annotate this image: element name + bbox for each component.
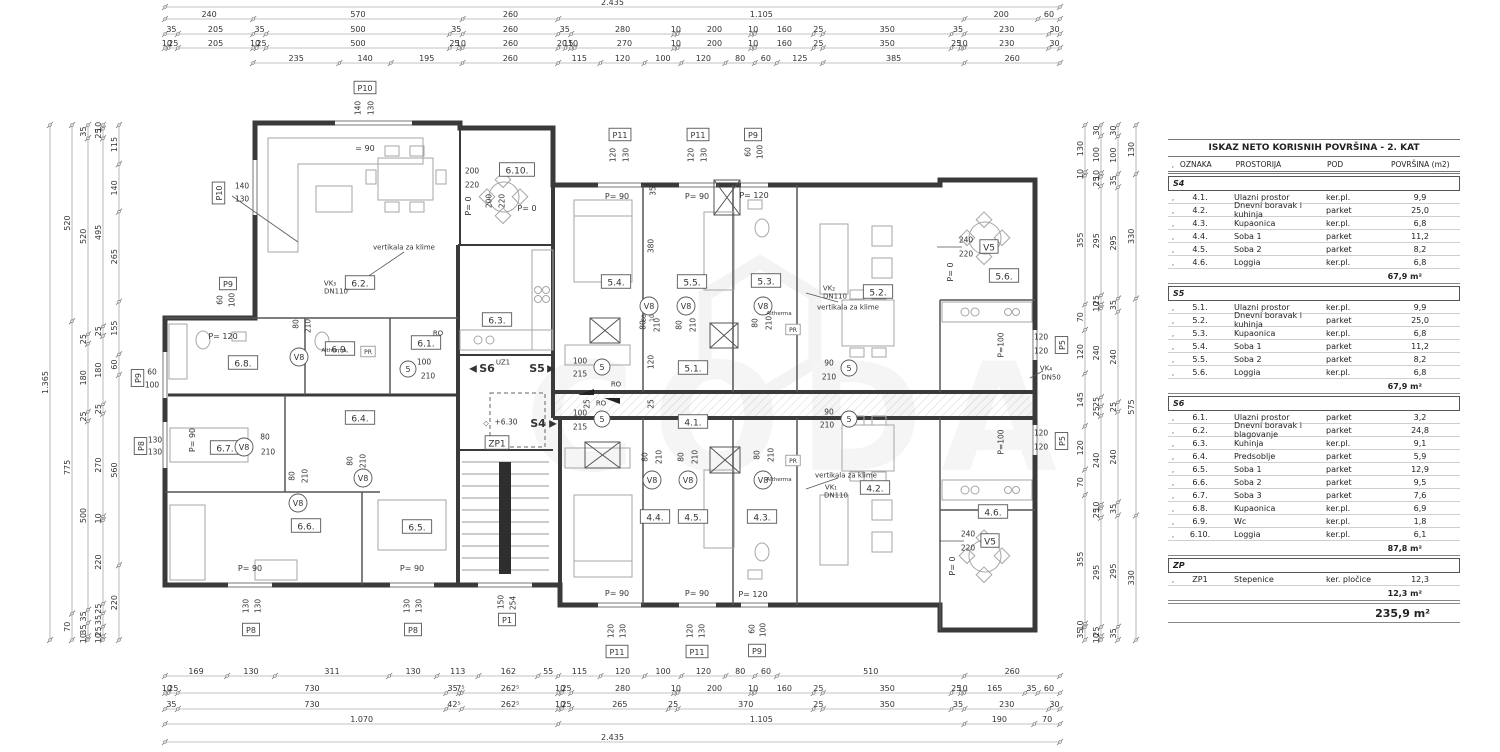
plan-text: 80 — [346, 456, 355, 466]
table-cell: Kuhinja — [1222, 439, 1318, 448]
boxed-label: 4.6. — [978, 505, 1007, 519]
table-cell: ker.pl. — [1318, 368, 1380, 377]
svg-text:ZP1: ZP1 — [488, 439, 505, 449]
svg-text:130: 130 — [619, 624, 628, 639]
dim-label: 30 — [1049, 39, 1059, 48]
plan-text: vertikala za klime — [815, 472, 877, 480]
plan-text: 240 — [961, 530, 976, 539]
dim-label: 385 — [886, 54, 901, 63]
table-row: ,6.6.Soba 2parket9,5 — [1168, 476, 1460, 489]
dim-label: 130 — [1127, 142, 1136, 157]
section-subtotal: 12,3 m² — [1168, 586, 1460, 601]
table-cell: parket — [1318, 355, 1380, 364]
dim-label: 30 — [1092, 125, 1101, 135]
svg-text:240: 240 — [959, 236, 974, 245]
plan-text: 220 — [961, 544, 976, 553]
table-header-row: , OZNAKA PROSTORIJA POD POVRŠINA (m2) — [1168, 157, 1460, 174]
svg-text:6.1.: 6.1. — [417, 339, 434, 349]
dim-label: 125 — [792, 54, 807, 63]
table-cell: 6.7. — [1178, 491, 1222, 500]
svg-text:210: 210 — [655, 450, 664, 465]
dim-label: 35 — [94, 615, 103, 625]
plan-text: RO — [596, 400, 607, 408]
table-cell: 25,0 — [1380, 316, 1460, 325]
svg-text:DN110: DN110 — [824, 492, 848, 500]
svg-text:130: 130 — [254, 599, 263, 614]
table-cell: Soba 3 — [1222, 491, 1318, 500]
table-cell: parket — [1318, 206, 1380, 215]
svg-text:DN110: DN110 — [324, 288, 348, 296]
svg-text:210: 210 — [820, 421, 835, 430]
svg-text:80: 80 — [292, 319, 301, 329]
boxed-label: 6.3. — [482, 313, 511, 327]
svg-text:PR: PR — [364, 349, 372, 356]
dim-label: 25 — [1092, 406, 1101, 416]
plan-text: Altherma — [321, 348, 346, 354]
section-header-zp: ZP — [1168, 558, 1460, 573]
table-cell: , — [1168, 368, 1178, 377]
plan-text: P=100 — [997, 429, 1006, 454]
circled-label: V8 — [354, 469, 372, 487]
table-cell: ker.pl. — [1318, 193, 1380, 202]
table-cell: 6,8 — [1380, 329, 1460, 338]
svg-text:4.5.: 4.5. — [684, 513, 701, 523]
plan-text: 200 — [485, 194, 494, 209]
plan-text: P= 0 — [948, 556, 957, 575]
table-cell: 9,9 — [1380, 193, 1460, 202]
svg-text:200: 200 — [485, 194, 494, 209]
svg-text:130: 130 — [415, 599, 424, 614]
dim-chain: 3010010252952510240252524010252952510 — [1092, 122, 1104, 643]
dim-label: 1.070 — [350, 715, 373, 724]
svg-text:140: 140 — [354, 101, 363, 116]
table-cell: 5.5. — [1178, 355, 1222, 364]
dim-label: 60 — [761, 54, 771, 63]
table-cell: , — [1168, 316, 1178, 325]
dim-label: 260 — [503, 39, 518, 48]
table-cell: Wc — [1222, 517, 1318, 526]
table-row: ,4.2.Dnevni boravak i kuhinjaparket25,0 — [1168, 204, 1460, 217]
svg-text:P1: P1 — [502, 616, 512, 625]
dim-label: 25 — [813, 684, 823, 693]
dim-label: 220 — [94, 554, 103, 569]
dim-label: 60 — [1044, 10, 1054, 19]
table-row: ,5.3.Kupaonicaker.pl.6,8 — [1168, 327, 1460, 340]
plan-text: 35 — [649, 186, 658, 196]
table-cell: ker.pl. — [1318, 517, 1380, 526]
dim-label: 25 — [1092, 397, 1101, 407]
table-corner: , — [1168, 160, 1178, 169]
plan-text: 130 — [403, 599, 412, 614]
dim-label: 240 — [1109, 349, 1118, 364]
plan-text: 100 — [756, 145, 765, 160]
table-row: ,5.6.Loggiaker.pl.6,8 — [1168, 366, 1460, 379]
table-row: ,6.7.Soba 3parket7,6 — [1168, 489, 1460, 502]
plan-text: 100 — [417, 358, 432, 367]
dim-label: 120 — [1076, 440, 1085, 455]
plan-text: 120 — [607, 624, 616, 639]
boxed-label: 4.3. — [747, 510, 776, 524]
dim-label: 70 — [1076, 477, 1085, 487]
boxed-label: 6.6. — [291, 519, 320, 533]
dim-label: 35 — [1076, 629, 1085, 639]
dim-label: 25 — [1092, 508, 1101, 518]
svg-text:120: 120 — [647, 355, 656, 370]
table-cell: 8,2 — [1380, 245, 1460, 254]
table-row: ,ZP1Stepeniceker. pločice12,3 — [1168, 573, 1460, 586]
table-row: ,6.4.Predsobljeparket5,9 — [1168, 450, 1460, 463]
boxed-label: P9 — [220, 277, 237, 290]
plan-text: = 90 — [355, 144, 374, 153]
table-cell: 4.2. — [1178, 206, 1222, 215]
table-cell: 25,0 — [1380, 206, 1460, 215]
svg-text:6.6.: 6.6. — [297, 522, 314, 532]
svg-text:5: 5 — [405, 365, 410, 374]
svg-text:P=100: P=100 — [997, 429, 1006, 454]
dim-label: 115 — [572, 54, 587, 63]
boxed-label: P5 — [1055, 337, 1068, 354]
table-cell: , — [1168, 258, 1178, 267]
dim-label: 205 — [208, 25, 223, 34]
table-cell: Kupaonica — [1222, 219, 1318, 228]
svg-text:90: 90 — [824, 408, 834, 417]
plan-text: 100 — [573, 357, 588, 366]
dim-label: 35 — [166, 25, 176, 34]
svg-text:210: 210 — [304, 319, 313, 334]
table-cell: Soba 1 — [1222, 232, 1318, 241]
dim-label: 180 — [94, 363, 103, 378]
table-cell: Dnevni boravak i kuhinja — [1222, 201, 1318, 219]
boxed-label: P10 — [354, 81, 376, 94]
svg-text:P= 90: P= 90 — [400, 564, 424, 573]
plan-text: 240 — [959, 236, 974, 245]
table-body: S4,4.1.Ulazni prostorker.pl.9,9,4.2.Dnev… — [1168, 176, 1460, 601]
svg-text:◇: ◇ — [483, 420, 489, 428]
plan-text: 220 — [959, 250, 974, 259]
dim-label: 155 — [110, 320, 119, 335]
dim-label: 130 — [243, 667, 258, 676]
dim-label: 240 — [1109, 449, 1118, 464]
grand-total: 235,9 m² — [1168, 603, 1460, 623]
boxed-label: 5.4. — [601, 275, 630, 289]
dim-label: 230 — [999, 700, 1014, 709]
dim-label: 240 — [1092, 453, 1101, 468]
svg-text:P= 0: P= 0 — [946, 262, 955, 281]
dim-chain: 301003529535240252403529535 — [1109, 122, 1121, 643]
dim-label: 35 — [451, 25, 461, 34]
plan-text: 80 — [675, 320, 684, 330]
plan-text: P= 90 — [400, 564, 424, 573]
svg-text:80: 80 — [751, 318, 760, 328]
table-cell: ker.pl. — [1318, 329, 1380, 338]
dim-label: 25 — [94, 128, 103, 138]
boxed-label: P8 — [243, 623, 260, 636]
dim-chain: 52077570 — [63, 122, 75, 643]
dim-label: 25 — [94, 404, 103, 414]
svg-text:220: 220 — [498, 194, 507, 209]
dim-label: 35 — [255, 25, 265, 34]
table-cell: , — [1168, 478, 1178, 487]
plan-text: vertikala za klime — [817, 304, 879, 312]
plan-text: 140 — [235, 182, 250, 191]
svg-text:4.6.: 4.6. — [984, 508, 1001, 518]
table-cell: 4.3. — [1178, 219, 1222, 228]
svg-text:25: 25 — [583, 399, 592, 409]
svg-text:P11: P11 — [609, 648, 624, 657]
svg-text:210: 210 — [421, 372, 436, 381]
svg-text:V8: V8 — [358, 474, 369, 483]
svg-text:DN110: DN110 — [823, 293, 847, 301]
svg-text:240: 240 — [961, 530, 976, 539]
plan-text: 120 — [609, 148, 618, 163]
table-cell: 6,9 — [1380, 504, 1460, 513]
boxed-label: 5.2. — [863, 285, 892, 299]
dim-label: 190 — [992, 715, 1007, 724]
plan-text: 130 — [700, 148, 709, 163]
table-cell: 8,2 — [1380, 355, 1460, 364]
plan-text: 120 — [1034, 429, 1049, 438]
dim-label: 35 — [79, 611, 88, 621]
boxed-label: PR — [786, 324, 800, 335]
svg-text:130: 130 — [622, 148, 631, 163]
boxed-label: P8 — [134, 438, 147, 455]
svg-text:P= 0: P= 0 — [517, 204, 536, 213]
table-cell: Loggia — [1222, 368, 1318, 377]
svg-text:RO: RO — [433, 330, 444, 338]
svg-text:120: 120 — [607, 624, 616, 639]
dim-label: 115 — [110, 137, 119, 152]
table-cell: 6.2. — [1178, 426, 1222, 435]
plan-text: Altherma — [766, 477, 791, 483]
svg-text:V8: V8 — [644, 302, 655, 311]
table-cell: 5.4. — [1178, 342, 1222, 351]
dim-label: 100 — [1109, 148, 1118, 163]
dim-label: 30 — [1049, 25, 1059, 34]
svg-text:= 90: = 90 — [355, 144, 374, 153]
circled-label: V8 — [235, 438, 253, 456]
dim-label: 330 — [1127, 570, 1136, 585]
dim-label: 42⁵ — [447, 700, 460, 709]
table-cell: , — [1168, 504, 1178, 513]
plan-text: 120 — [687, 148, 696, 163]
plan-text: 60 — [748, 624, 757, 634]
table-cell: 6,8 — [1380, 219, 1460, 228]
table-cell: , — [1168, 439, 1178, 448]
dim-label: 35 — [953, 25, 963, 34]
svg-text:Altherma: Altherma — [766, 311, 791, 317]
plan-text: 60 — [147, 368, 157, 377]
svg-text:210: 210 — [359, 454, 368, 469]
boxed-label: ZP1 — [485, 436, 509, 450]
table-cell: Dnevni boravak i blagovanje — [1222, 421, 1318, 439]
boxed-label: PR — [361, 346, 375, 357]
dim-label: 520 — [63, 215, 72, 230]
plan-text: 215 — [573, 423, 588, 432]
svg-text:P= 120: P= 120 — [739, 191, 768, 200]
svg-text:P9: P9 — [752, 647, 762, 656]
dim-chain: 1.365 — [41, 122, 53, 643]
table-cell: , — [1168, 303, 1178, 312]
table-row: ,6.8.Kupaonicaker.pl.6,9 — [1168, 502, 1460, 515]
boxed-label: P11 — [686, 645, 708, 658]
boxed-label: 4.1. — [678, 415, 707, 429]
dim-label: 35 — [1109, 300, 1118, 310]
table-cell: 12,9 — [1380, 465, 1460, 474]
boxed-label: 6.5. — [402, 520, 431, 534]
table-cell: 6.10. — [1178, 530, 1222, 539]
table-cell: parket — [1318, 245, 1380, 254]
plan-text: 210 — [820, 421, 835, 430]
svg-text:P10: P10 — [357, 84, 372, 93]
plan-text: VK₂ — [823, 285, 835, 293]
plan-text: P= 120 — [739, 191, 768, 200]
svg-text:P8: P8 — [408, 626, 418, 635]
svg-text:80: 80 — [677, 452, 686, 462]
svg-text:6.2.: 6.2. — [351, 279, 368, 289]
plan-text: 210 — [822, 373, 837, 382]
svg-text:10: 10 — [649, 314, 656, 322]
plan-text: 80 — [292, 319, 301, 329]
plan-text: 210 — [304, 319, 313, 334]
svg-text:215: 215 — [573, 423, 588, 432]
dim-label: 560 — [110, 462, 119, 477]
plan-text: ▶ — [547, 364, 555, 375]
table-row: ,6.9.Wcker.pl.1,8 — [1168, 515, 1460, 528]
svg-text:90: 90 — [824, 359, 834, 368]
svg-text:V8: V8 — [239, 443, 250, 452]
dim-chain: 1.0701.10519070 — [162, 715, 1063, 727]
svg-text:60: 60 — [744, 147, 753, 157]
dim-label: 295 — [1109, 235, 1118, 250]
dim-label: 350 — [880, 39, 895, 48]
dim-label: 120 — [615, 54, 630, 63]
dim-label: 145 — [1076, 392, 1085, 407]
dim-label: 350 — [880, 700, 895, 709]
dim-chain: 11514026515560560220 — [110, 122, 122, 643]
svg-text:P= 0: P= 0 — [948, 556, 957, 575]
table-cell: 11,2 — [1380, 342, 1460, 351]
dim-label: 295 — [1092, 565, 1101, 580]
table-cell: 4.5. — [1178, 245, 1222, 254]
svg-text:5.4.: 5.4. — [607, 278, 624, 288]
table-cell: , — [1168, 355, 1178, 364]
dim-label: 200 — [707, 39, 722, 48]
svg-text:5: 5 — [599, 363, 604, 372]
table-cell: Soba 2 — [1222, 355, 1318, 364]
svg-text:380: 380 — [647, 239, 656, 254]
dim-chain: 355202518025500353510 — [79, 122, 91, 643]
plan-text: 210 — [691, 450, 700, 465]
plan-text: P= 0 — [517, 204, 536, 213]
table-cell: , — [1168, 232, 1178, 241]
plan-text: 120 — [1034, 443, 1049, 452]
plan-text: DN50 — [1041, 374, 1061, 382]
dim-label: 25 — [1092, 176, 1101, 186]
dim-label: 35 — [1109, 176, 1118, 186]
dim-label: 25 — [94, 604, 103, 614]
svg-text:P=100: P=100 — [997, 332, 1006, 357]
boxed-label: V5 — [981, 534, 999, 548]
svg-text:Altherma: Altherma — [766, 477, 791, 483]
dim-label: 510 — [863, 667, 878, 676]
svg-text:V8: V8 — [681, 302, 692, 311]
svg-text:P= 90: P= 90 — [605, 589, 629, 598]
svg-text:5.5.: 5.5. — [683, 278, 700, 288]
circled-label: 5 — [841, 411, 857, 427]
table-cell: 1,8 — [1380, 517, 1460, 526]
svg-text:5.6.: 5.6. — [995, 272, 1012, 282]
table-cell: ker.pl. — [1318, 258, 1380, 267]
boxed-label: 6.10. — [500, 163, 535, 177]
plan-text: 120 — [1034, 333, 1049, 342]
table-row: ,4.3.Kupaonicaker.pl.6,8 — [1168, 217, 1460, 230]
svg-text:P11: P11 — [612, 131, 627, 140]
section-subtotal: 87,8 m² — [1168, 541, 1460, 556]
dim-label: 130 — [1076, 141, 1085, 156]
dim-label: 169 — [188, 667, 203, 676]
dim-label: 262⁵ — [501, 684, 519, 693]
svg-text:215: 215 — [573, 370, 588, 379]
dim-label: 235 — [289, 54, 304, 63]
boxed-label: PR — [786, 455, 800, 466]
dim-label: 1.105 — [750, 715, 773, 724]
dim-label: 35 — [1109, 504, 1118, 514]
table-row: ,5.2.Dnevni boravak i kuhinjaparket25,0 — [1168, 314, 1460, 327]
svg-text:P9: P9 — [134, 373, 143, 383]
svg-text:220: 220 — [961, 544, 976, 553]
plan-text: 130 — [235, 195, 250, 204]
svg-text:VK₁: VK₁ — [825, 484, 837, 492]
dim-label: 60 — [761, 667, 771, 676]
dim-label: 200 — [707, 25, 722, 34]
table-cell: 9,1 — [1380, 439, 1460, 448]
table-cell: , — [1168, 206, 1178, 215]
svg-text:P10: P10 — [215, 185, 224, 200]
dim-chain: 2.435 — [162, 733, 1063, 745]
dim-label: 230 — [999, 39, 1014, 48]
boxed-label: 4.4. — [640, 510, 669, 524]
table-cell: 5.3. — [1178, 329, 1222, 338]
svg-text:V5: V5 — [984, 537, 996, 547]
svg-text:210: 210 — [689, 318, 698, 333]
dim-label: 295 — [1109, 564, 1118, 579]
plan-text: 130 — [148, 448, 163, 457]
svg-text:VK₂: VK₂ — [823, 285, 835, 293]
plan-text: 130 — [698, 624, 707, 639]
table-cell: parket — [1318, 465, 1380, 474]
svg-text:S6: S6 — [479, 362, 495, 375]
plan-text: 120 — [1034, 347, 1049, 356]
table-cell: ker.pl. — [1318, 439, 1380, 448]
svg-text:P9: P9 — [748, 131, 758, 140]
svg-text:6.5.: 6.5. — [408, 523, 425, 533]
dim-chain: 130330575330 — [1127, 122, 1139, 643]
table-cell: parket — [1318, 342, 1380, 351]
table-cell: 6,8 — [1380, 368, 1460, 377]
plan-text: P=100 — [997, 332, 1006, 357]
table-cell: Loggia — [1222, 530, 1318, 539]
table-cell: , — [1168, 465, 1178, 474]
plan-text: P= 90 — [685, 589, 709, 598]
dim-label: 370 — [738, 700, 753, 709]
svg-text:35: 35 — [649, 186, 658, 196]
plan-text: 120 — [647, 355, 656, 370]
table-cell: parket — [1318, 232, 1380, 241]
plan-text: VK₁ — [825, 484, 837, 492]
dim-label: 70 — [1076, 312, 1085, 322]
table-cell: 24,8 — [1380, 426, 1460, 435]
plan-text: S5 — [529, 362, 545, 375]
